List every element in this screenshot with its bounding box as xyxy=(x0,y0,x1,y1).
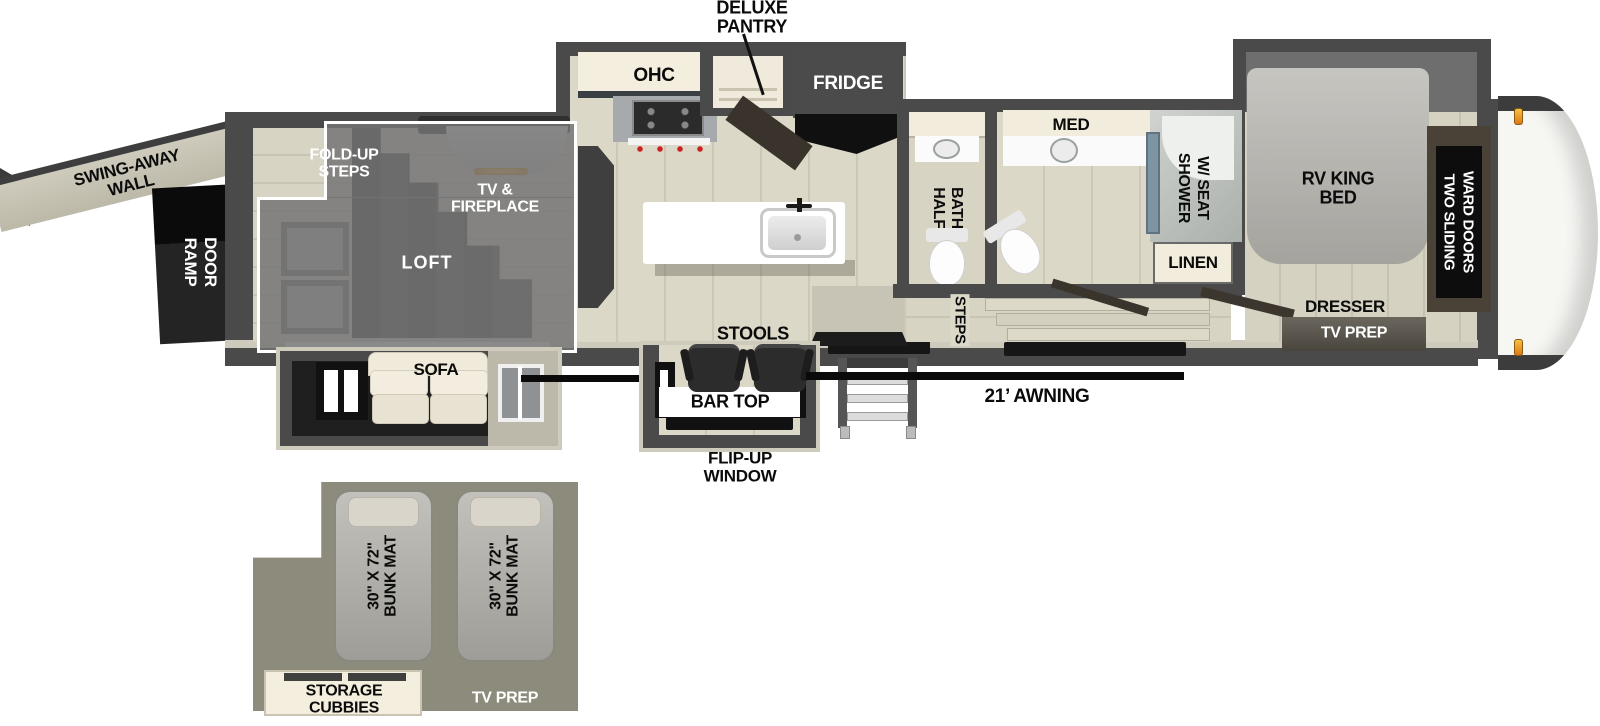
sofa-window-pane-2 xyxy=(344,370,358,412)
steps-label: STEPS xyxy=(951,294,970,346)
bunk-mat-2-pillow xyxy=(470,497,541,527)
fridge-label: FRIDGE xyxy=(813,74,883,94)
entry-steps-top-bar xyxy=(838,358,917,368)
half-bath-label-line1: HALF xyxy=(929,187,947,228)
ohc-label: OHC xyxy=(633,66,674,86)
ramp-door-label-line2: DOOR xyxy=(200,237,220,287)
marker-light-top xyxy=(1514,108,1523,125)
stool-1 xyxy=(688,344,740,392)
bed-slide-top-wall xyxy=(1233,39,1491,52)
bath-sink xyxy=(1050,138,1078,163)
sofa-seat-cushion-1 xyxy=(372,394,429,424)
island-sink-basin xyxy=(768,216,826,250)
shower-label-line2: W/ SEAT xyxy=(1193,156,1211,219)
shower-label-line1: SHOWER xyxy=(1174,153,1192,223)
loft-outline-notch xyxy=(257,197,327,200)
storage-cubbies-slit-1 xyxy=(284,673,342,681)
hall-step-3 xyxy=(1007,328,1210,341)
sofa-window-pane-1 xyxy=(324,370,338,412)
front-cap-bottom-band xyxy=(1498,355,1598,370)
rv-king-bed xyxy=(1247,68,1429,264)
bottom-wall-window-2 xyxy=(1004,342,1186,356)
cooktop-knobs xyxy=(634,146,706,152)
stool-2 xyxy=(754,344,806,392)
awning-label: 21’ AWNING xyxy=(984,387,1089,407)
rv-king-bed-label: RV KING BED xyxy=(1302,169,1375,206)
loft-label: LOFT xyxy=(402,254,453,273)
marker-light-bottom xyxy=(1514,339,1523,356)
stools-label: STOOLS xyxy=(717,325,789,344)
entry-door-mat xyxy=(810,332,908,346)
bunk-mat-1-label: 30" X 72" BUNK MAT xyxy=(366,535,401,617)
flip-up-window-label: FLIP-UP WINDOW xyxy=(704,449,777,484)
sink-drain xyxy=(794,234,801,241)
rear-wall xyxy=(225,112,253,362)
floorplan-canvas: SWING-AWAY WALL RAMP DOOR FOLD-UP STEPS … xyxy=(0,0,1600,726)
half-bath-right-wall xyxy=(985,99,997,295)
bar-top-label: BAR TOP xyxy=(691,393,770,412)
loft-outline-left-lower xyxy=(257,197,260,353)
storage-cubbies-label: STORAGE CUBBIES xyxy=(306,683,383,716)
ward-doors-label-line2: WARD DOORS xyxy=(1460,171,1477,273)
loft-overlay-lower xyxy=(257,197,577,353)
fold-up-steps-label: FOLD-UP STEPS xyxy=(309,147,378,180)
cooktop xyxy=(632,100,704,136)
loft-outline-right xyxy=(574,121,577,353)
sofa-label: SOFA xyxy=(413,361,458,379)
bath-vanity xyxy=(1003,136,1161,166)
tv-prep-bedroom-label: TV PREP xyxy=(1321,326,1387,343)
entry-steps-foot-right xyxy=(906,426,916,439)
entry-steps-foot-left xyxy=(840,426,850,439)
hall-step-2 xyxy=(996,313,1210,326)
ramp-door-label-line1: RAMP xyxy=(180,238,200,287)
sink-faucet-stem xyxy=(797,198,802,212)
tv-fireplace-label: TV & FIREPLACE xyxy=(451,182,539,215)
half-bath-left-wall xyxy=(897,99,909,295)
entry-step-2 xyxy=(847,394,908,403)
awning-line xyxy=(806,372,1184,380)
front-cap xyxy=(1498,96,1598,370)
entry-steps-rail-left xyxy=(838,358,847,428)
bunk-mat-2-label: 30" X 72" BUNK MAT xyxy=(488,535,523,617)
ward-doors-label-line1: TWO SLIDING xyxy=(1441,174,1458,271)
bar-window-sill xyxy=(666,417,793,430)
med-label: MED xyxy=(1053,116,1090,134)
linen-label: LINEN xyxy=(1168,254,1218,272)
half-bath-cabinet xyxy=(909,112,985,138)
loft-outline-top xyxy=(324,121,577,124)
entry-step-3 xyxy=(847,412,908,421)
cooktop-front-strip xyxy=(628,138,710,145)
tv-prep-bunk-label: TV PREP xyxy=(472,691,538,708)
half-bath-sink xyxy=(933,139,960,159)
storage-cubbies-slit-2 xyxy=(348,673,406,681)
entertainment-wall xyxy=(578,146,614,308)
bunk-mat-1-pillow xyxy=(348,497,419,527)
door-side-awning-line xyxy=(521,375,643,382)
half-bath-toilet-bowl xyxy=(929,240,965,286)
deluxe-pantry-label: DELUXE PANTRY xyxy=(716,0,787,36)
entry-steps-rail-right xyxy=(908,358,917,428)
half-bath-label-line2: BATH xyxy=(947,187,965,229)
entry-cabinet xyxy=(812,286,904,340)
dresser-label: DRESSER xyxy=(1305,298,1385,316)
shower-glass xyxy=(1146,132,1160,234)
front-cap-top-band xyxy=(1498,96,1598,111)
sofa-seat-cushion-2 xyxy=(430,394,487,424)
